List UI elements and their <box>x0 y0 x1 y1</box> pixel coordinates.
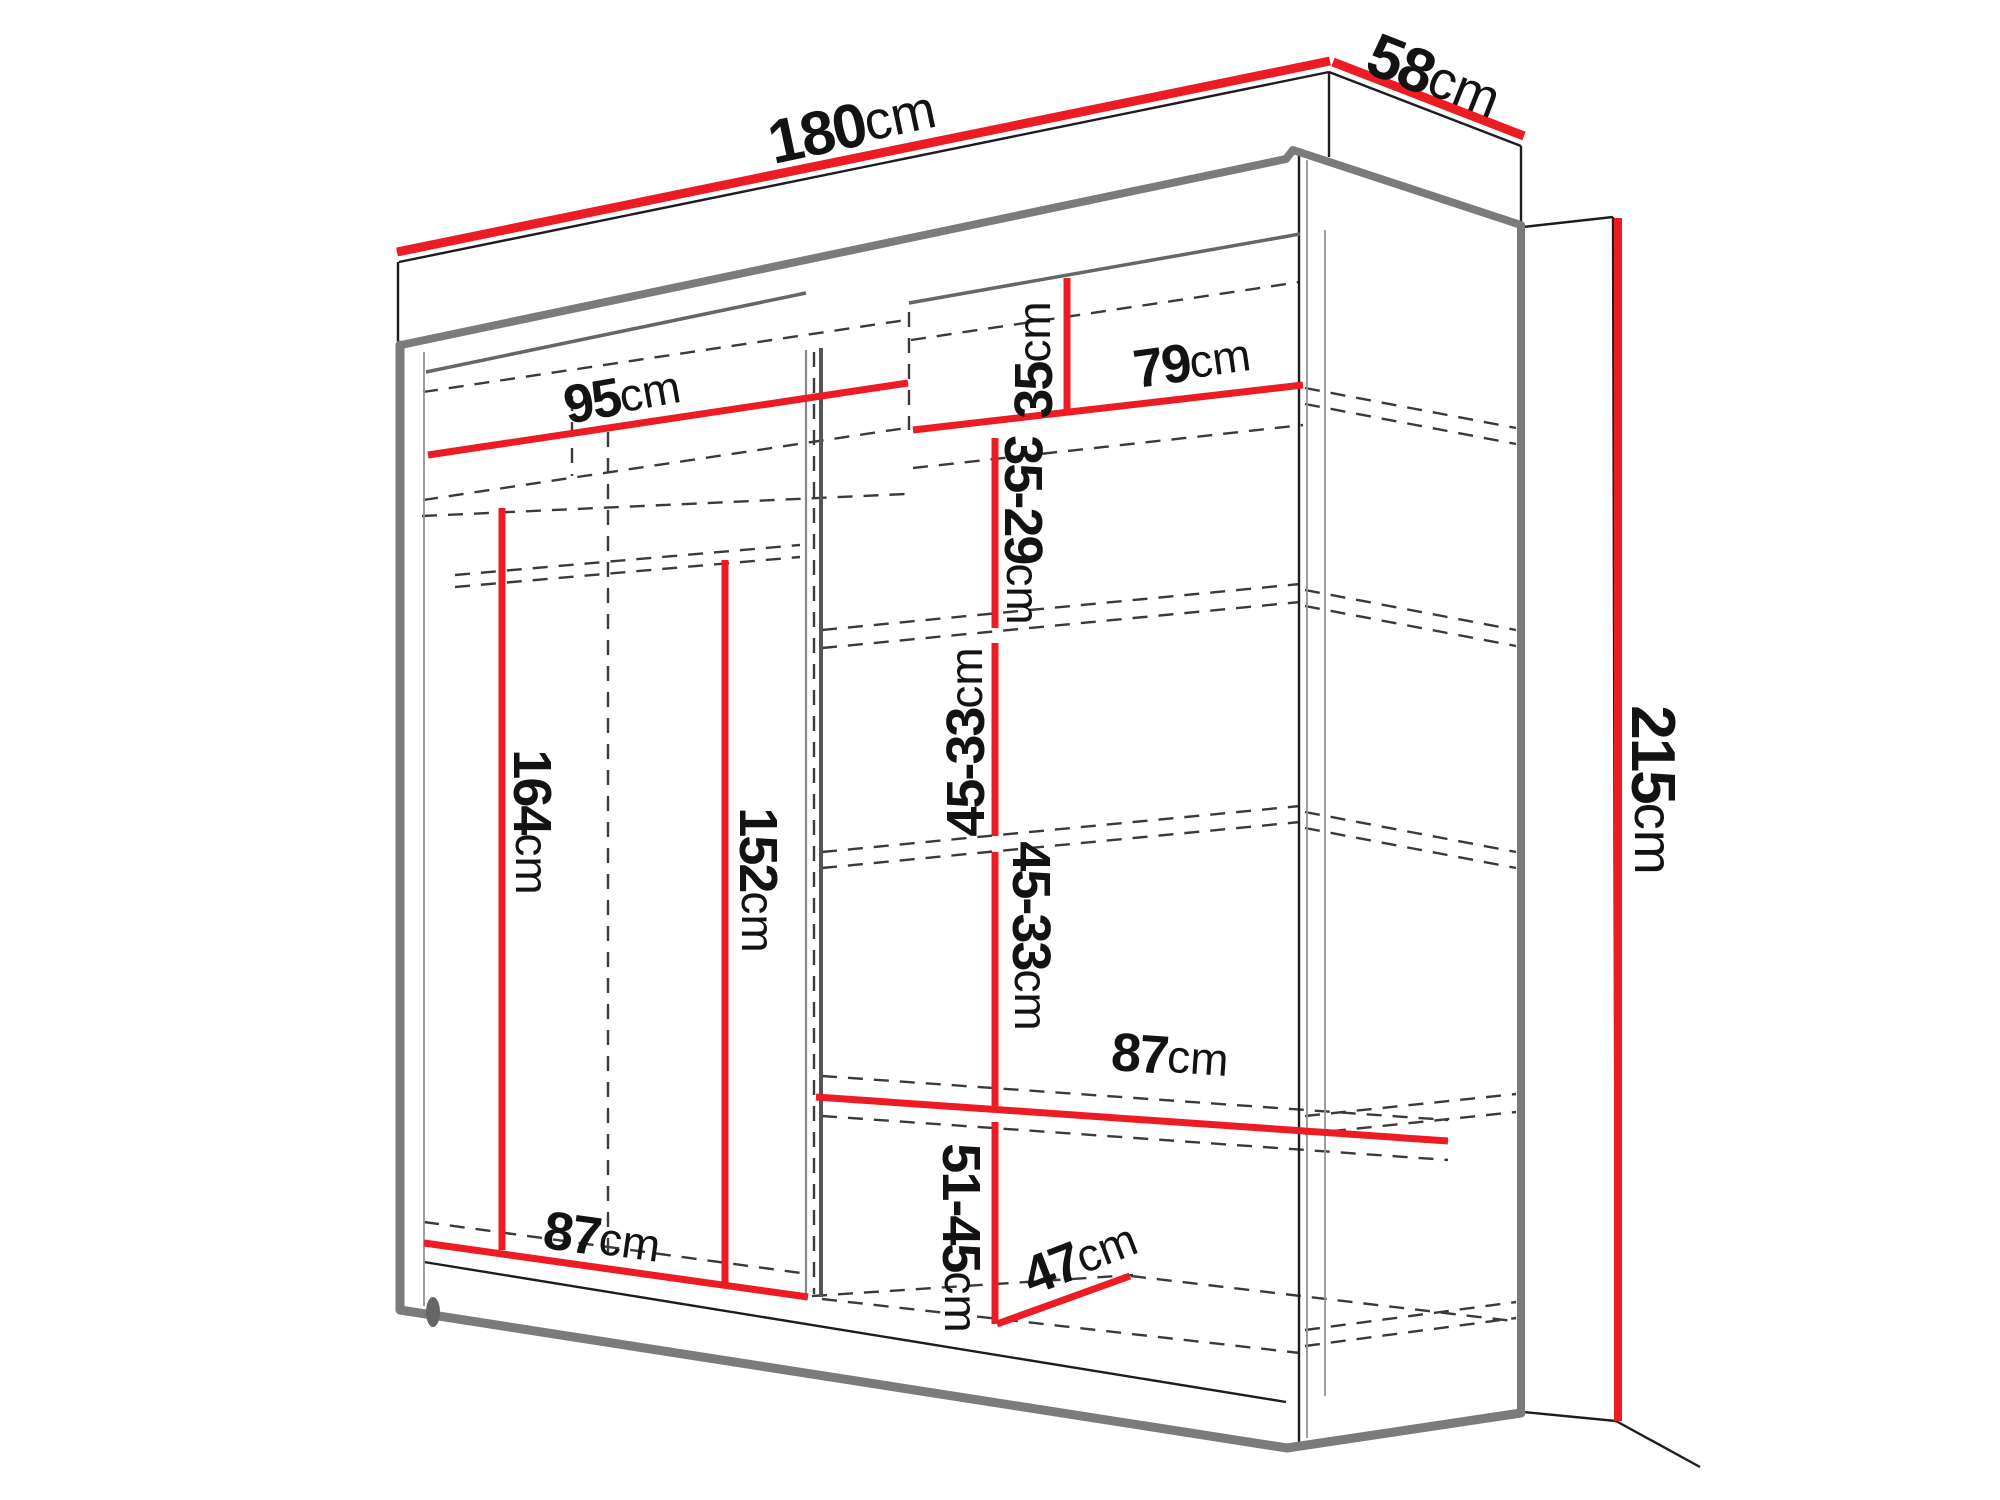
side-shelf2-depth-edge-a <box>1305 812 1516 852</box>
right-shelf1-front-edge <box>822 584 1300 630</box>
dimension-label-top-shelf-gap: 35cm <box>1004 301 1064 418</box>
side-floor-depth-edge-b <box>1305 1318 1516 1346</box>
dimension-label-bottom-shelf-spacing: 51-45cm <box>931 1143 991 1332</box>
floor-line <box>1616 1421 1700 1467</box>
hanging-rod-bottom <box>455 557 800 587</box>
right-floor-back-edge <box>1131 1276 1513 1321</box>
left-shelf-back-edge <box>423 428 906 500</box>
dimension-line-right-shelf-87 <box>816 1097 1448 1141</box>
side-panel-bottom-edge <box>1523 1412 1616 1421</box>
left-shelf-lower-edge <box>422 494 906 516</box>
right-shelf1-back-edge <box>822 602 1300 648</box>
side-panel-top-edge <box>1523 217 1613 227</box>
dimension-label-left-interior-height: 164cm <box>502 749 562 894</box>
front-foot <box>426 1297 440 1327</box>
side-shelf1-depth-edge-b <box>1305 606 1516 646</box>
dimension-label-right-section-width: 79cm <box>1130 324 1255 400</box>
diagram-canvas: 180cm 58cm 215cm 95cm 35cm 79cm 35-29cm … <box>0 0 2000 1500</box>
side-floor-depth-edge-a <box>1305 1302 1516 1330</box>
side-rail-depth-edge-b <box>1305 404 1516 444</box>
right-floor-front-edge <box>822 1299 1300 1353</box>
wardrobe-dimension-diagram: 180cm 58cm 215cm 95cm 35cm 79cm 35-29cm … <box>0 0 2000 1500</box>
side-shelf1-depth-edge-a <box>1305 590 1516 630</box>
dimension-label-shelf-spacing-1: 35-29cm <box>993 435 1053 624</box>
side-shelf3-depth-edge-a <box>1305 1094 1516 1116</box>
right-rail-back-edge <box>913 425 1303 468</box>
side-rail-depth-edge-a <box>1305 388 1516 428</box>
dimension-label-height: 215cm <box>1619 705 1688 874</box>
dimension-label-shelf-spacing-3: 45-33cm <box>1001 841 1061 1030</box>
dimension-line-right-width-79 <box>913 385 1303 430</box>
dimension-label-left-interior-height-2: 152cm <box>728 807 788 952</box>
dimension-label-depth: 58cm <box>1358 20 1511 134</box>
dimension-label-right-shelf-width: 87cm <box>1109 1022 1230 1090</box>
left-top-rail <box>426 293 806 372</box>
side-shelf2-depth-edge-b <box>1305 828 1516 868</box>
hanging-rod-top <box>455 545 800 575</box>
dimension-label-shelf-spacing-2: 45-33cm <box>936 647 996 836</box>
right-top-rail <box>909 234 1300 303</box>
